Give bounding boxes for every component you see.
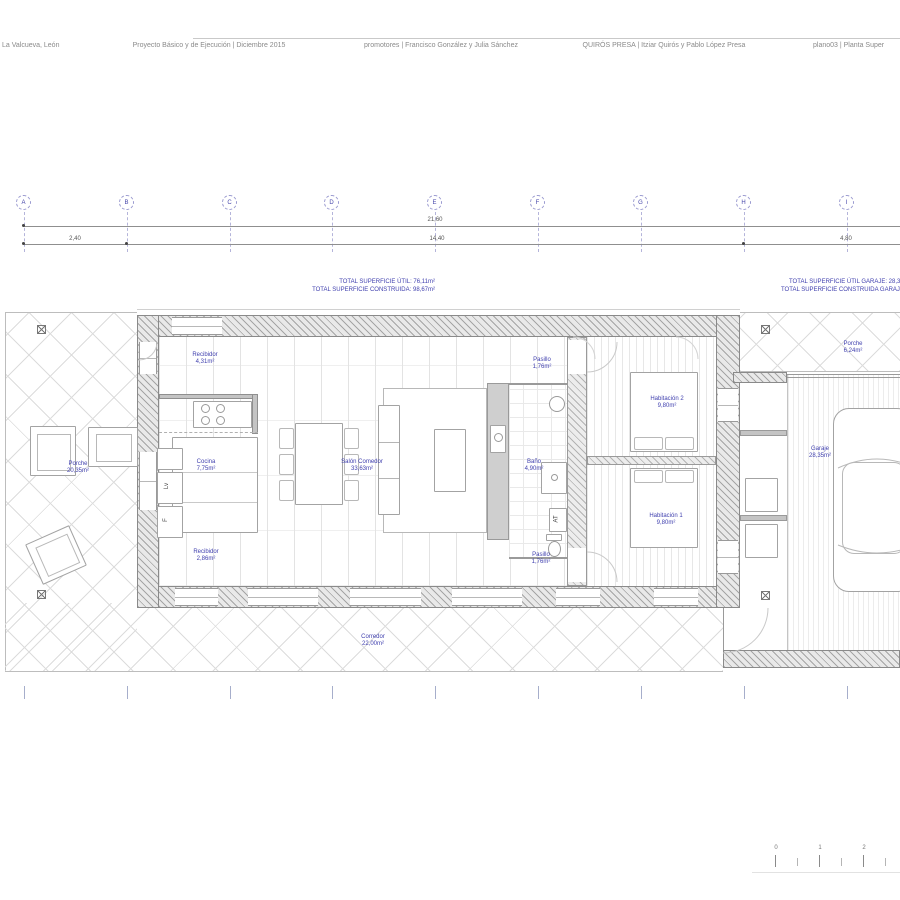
- floor-plan-sheet: La Valcueva, León Proyecto Básico y de E…: [0, 0, 900, 900]
- room-name: Baño: [525, 459, 544, 466]
- room-label-pasillo-2: Pasillo1,76m²: [532, 552, 551, 566]
- room-name: Pasillo: [532, 552, 551, 559]
- grid-tick: [538, 686, 539, 699]
- room-area: 6,24m²: [843, 348, 862, 355]
- room-area: 1,76m²: [533, 364, 552, 371]
- grid-tick: [435, 686, 436, 699]
- grid-tick: [641, 686, 642, 699]
- room-name: Pasillo: [533, 357, 552, 364]
- room-label-porche-trasero: Porche6,24m²: [843, 341, 862, 355]
- scale-tick-minor: [797, 858, 798, 866]
- room-area: 33,63m²: [341, 466, 383, 473]
- room-label-pasillo-1: Pasillo1,76m²: [533, 357, 552, 371]
- scale-label-1: 1: [818, 845, 821, 851]
- room-area: 7,75m²: [197, 466, 216, 473]
- scale-tick-minor: [841, 858, 842, 866]
- room-name: Porche: [843, 341, 862, 348]
- room-area: 4,31m²: [192, 359, 217, 366]
- room-label-habitacion-2: Habitación 29,80m²: [650, 396, 683, 410]
- room-name: Garaje: [809, 446, 831, 453]
- scale-baseline: [752, 872, 900, 873]
- room-label-corredor: Corredor22,00m²: [361, 634, 385, 648]
- room-label-salon-comedor: Salón Comedor33,63m²: [341, 459, 383, 473]
- grid-tick: [127, 686, 128, 699]
- room-label-habitacion-1: Habitación 19,80m²: [649, 513, 682, 527]
- room-area: 1,76m²: [532, 559, 551, 566]
- room-name: Habitación 2: [650, 396, 683, 403]
- scale-tick-major: [819, 855, 820, 867]
- room-label-cocina: Cocina7,75m²: [197, 459, 216, 473]
- room-name: Corredor: [361, 634, 385, 641]
- scale-label-0: 0: [774, 845, 777, 851]
- room-name: Cocina: [197, 459, 216, 466]
- room-area: 9,80m²: [649, 520, 682, 527]
- room-area: 9,80m²: [650, 403, 683, 410]
- room-label-recibidor-2: Recibidor2,86m²: [193, 549, 218, 563]
- door-swing-arcs: [0, 0, 900, 900]
- room-label-bano: Baño4,90m²: [525, 459, 544, 473]
- room-area: 22,00m²: [361, 641, 385, 648]
- room-area: 28,35m²: [809, 453, 831, 460]
- room-area: 4,90m²: [525, 466, 544, 473]
- scale-label-2: 2: [862, 845, 865, 851]
- scale-tick-major: [863, 855, 864, 867]
- scale-tick-major: [775, 855, 776, 867]
- room-area: 2,86m²: [193, 556, 218, 563]
- grid-tick: [24, 686, 25, 699]
- room-name: Recibidor: [193, 549, 218, 556]
- room-area: 20,35m²: [67, 468, 89, 475]
- grid-tick: [332, 686, 333, 699]
- room-label-garaje: Garaje28,35m²: [809, 446, 831, 460]
- grid-tick: [230, 686, 231, 699]
- room-name: Porche: [67, 461, 89, 468]
- room-name: Recibidor: [192, 352, 217, 359]
- room-name: Habitación 1: [649, 513, 682, 520]
- grid-tick: [744, 686, 745, 699]
- room-label-porche: Porche20,35m²: [67, 461, 89, 475]
- room-label-recibidor-1: Recibidor4,31m²: [192, 352, 217, 366]
- grid-tick: [847, 686, 848, 699]
- room-name: Salón Comedor: [341, 459, 383, 466]
- scale-tick-minor: [885, 858, 886, 866]
